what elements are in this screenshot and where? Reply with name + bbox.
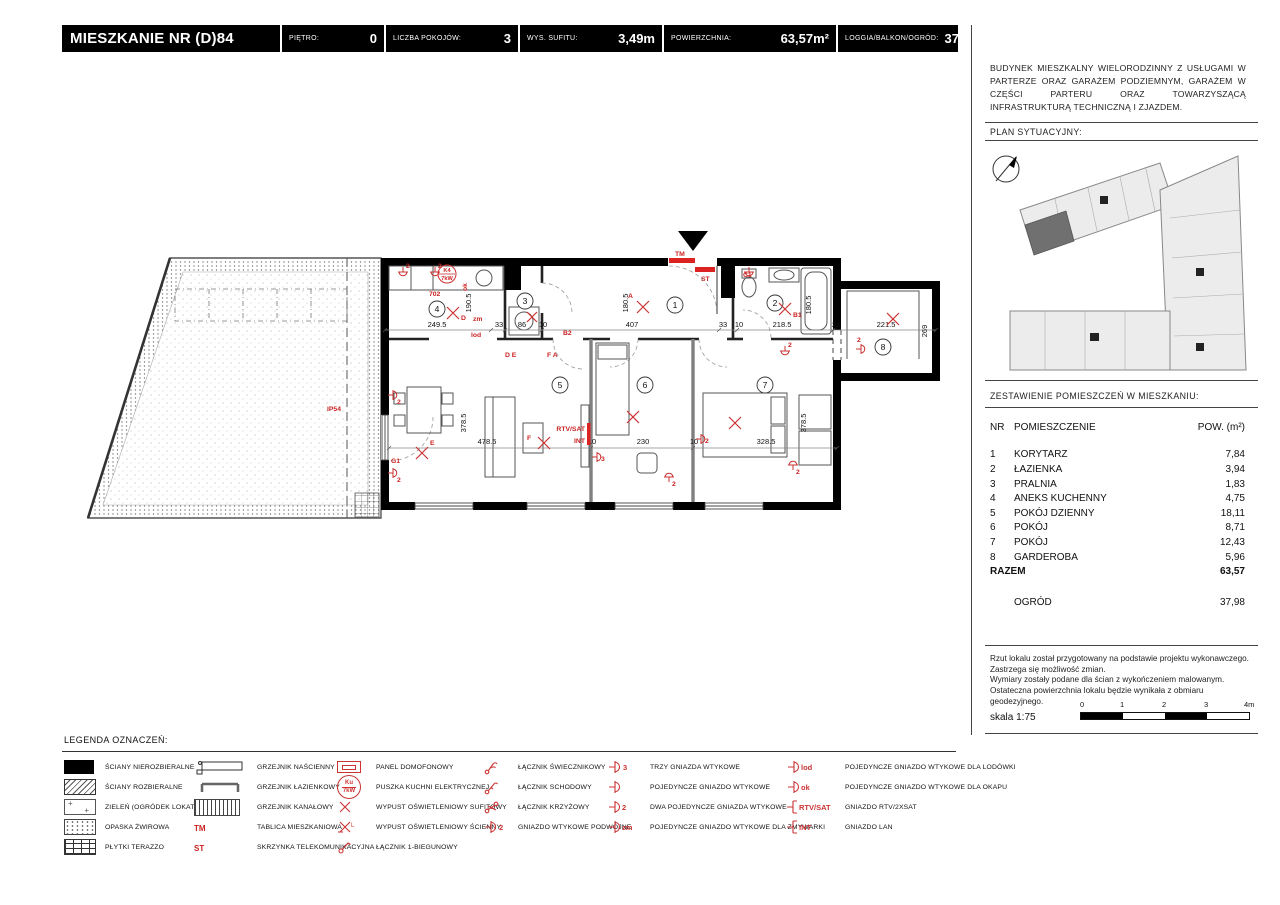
switch-single-icon: [337, 840, 353, 855]
svg-text:INT: INT: [574, 438, 586, 445]
svg-text:A: A: [628, 293, 633, 300]
legend-divider: [62, 751, 956, 752]
radiator-bathroom-icon: [194, 780, 246, 794]
svg-text:86: 86: [518, 320, 526, 329]
apartment-title: MIESZKANIE NR (D)84: [62, 25, 280, 52]
svg-text:269: 269: [920, 325, 929, 338]
svg-text:1: 1: [673, 300, 678, 310]
header-field-ceiling: WYS. SUFITU: 3,49m: [518, 25, 662, 52]
svg-text:F: F: [527, 435, 531, 442]
svg-text:lod: lod: [801, 763, 813, 772]
field-label: POWIERZCHNIA:: [671, 35, 731, 42]
svg-text:2: 2: [397, 477, 401, 484]
entrance-arrow-icon: [678, 231, 708, 251]
svg-text:478.5: 478.5: [478, 437, 497, 446]
header-field-garden: LOGGIA/BALKON/OGRÓD: 37,98m²: [836, 25, 1000, 52]
socket-two-single-icon: 2: [607, 799, 633, 815]
legend-item: Ku7kWPUSZKA KUCHNI ELEKTRYCZNEJ: [337, 777, 507, 797]
building-wing-b: [1160, 156, 1246, 370]
field-value: 3: [498, 31, 511, 46]
floor-plan: IP54 TM ST: [85, 225, 965, 535]
legend-item: INTGNIAZDO LAN: [786, 817, 1016, 837]
table-row: 5POKÓJ DZIENNY18,11: [990, 506, 1245, 521]
ceiling-light-icon: [337, 800, 353, 814]
col-nr: NR: [990, 422, 1014, 433]
greenery-icon: [64, 799, 96, 815]
field-value: 3,49m: [612, 31, 655, 46]
legend-item: WYPUST OŚWIETLENIOWY SUFITOWY: [337, 797, 507, 817]
svg-text:3: 3: [601, 456, 605, 463]
svg-text:RTV/SAT: RTV/SAT: [799, 803, 831, 812]
col-area: POW. (m²): [1185, 422, 1245, 433]
socket-triple-icon: 3: [607, 759, 633, 775]
legend-item: okPOJEDYNCZE GNIAZDO WTYKOWE DLA OKAPU: [786, 777, 1016, 797]
switch-cross-icon: [483, 800, 501, 815]
field-label: WYS. SUFITU:: [527, 35, 578, 42]
svg-text:2: 2: [499, 823, 503, 832]
socket-fridge-icon: lod: [786, 759, 820, 775]
sidebar-divider: [971, 25, 972, 735]
svg-text:2: 2: [397, 399, 401, 406]
situational-plan-title: PLAN SYTUACYJNY:: [990, 127, 1082, 137]
divider-line: [985, 645, 1258, 646]
svg-text:B2: B2: [563, 330, 572, 337]
walls-solid-icon: [64, 760, 94, 774]
tm-icon: TM: [194, 818, 206, 836]
legend-item: PANEL DOMOFONOWY: [337, 757, 507, 777]
table-row: 6POKÓJ8,71: [990, 521, 1245, 536]
table-garden-row: OGRÓD37,98: [990, 595, 1245, 610]
svg-text:407: 407: [626, 320, 639, 329]
socket-hood-icon: ok: [786, 779, 820, 795]
field-label: LICZBA POKOJÓW:: [393, 35, 461, 42]
svg-text:378.5: 378.5: [459, 414, 468, 433]
svg-text:218.5: 218.5: [773, 320, 792, 329]
col-name: POMIESZCZENIE: [1014, 422, 1185, 433]
svg-text:2: 2: [705, 438, 709, 445]
socket-double-icon: 2: [483, 819, 507, 835]
field-label: LOGGIA/BALKON/OGRÓD:: [845, 35, 939, 42]
legend-item: LWYPUST OŚWIETLENIOWY ŚCIENNY: [337, 817, 507, 837]
st-icon: ST: [194, 838, 204, 856]
radiator-wall-icon: [194, 759, 246, 775]
svg-text:180.5: 180.5: [804, 296, 813, 315]
svg-text:33: 33: [719, 320, 727, 329]
svg-text:221.5: 221.5: [877, 320, 896, 329]
wall-light-icon: L: [337, 820, 357, 834]
field-label: PIĘTRO:: [289, 35, 319, 42]
room-table: NR POMIESZCZENIE POW. (m²) 1KORYTARZ7,84…: [990, 420, 1245, 610]
header-bar: MIESZKANIE NR (D)84 PIĘTRO: 0 LICZBA POK…: [62, 25, 958, 52]
svg-text:E: E: [430, 440, 435, 447]
legend-item: lodPOJEDYNCZE GNIAZDO WTYKOWE DLA LODÓWK…: [786, 757, 1016, 777]
table-total-row: RAZEM63,57: [990, 564, 1245, 579]
header-field-rooms: LICZBA POKOJÓW: 3: [384, 25, 518, 52]
svg-text:2: 2: [857, 337, 861, 344]
terazzo-pad: [355, 493, 379, 517]
walls-removable-icon: [64, 779, 96, 795]
svg-text:4: 4: [435, 304, 440, 314]
svg-text:F A: F A: [547, 352, 558, 359]
svg-text:21: 21: [832, 320, 840, 329]
svg-text:10: 10: [735, 320, 743, 329]
svg-text:3: 3: [523, 296, 528, 306]
svg-text:190.5: 190.5: [464, 294, 473, 313]
svg-text:RTV/SAT: RTV/SAT: [556, 426, 585, 433]
table-row: 8GARDEROBA5,96: [990, 550, 1245, 565]
svg-text:D: D: [461, 315, 466, 322]
terazzo-icon: [64, 839, 96, 855]
svg-text:ok: ok: [462, 283, 469, 291]
svg-text:INT: INT: [799, 823, 812, 832]
svg-text:7kW: 7kW: [441, 276, 453, 282]
svg-text:ok: ok: [801, 783, 811, 792]
table-row: 3PRALNIA1,83: [990, 477, 1245, 492]
svg-text:D E: D E: [505, 352, 517, 359]
svg-text:2: 2: [672, 481, 676, 488]
kitchen-power-box-icon: Ku7kW: [337, 775, 361, 799]
divider-line: [985, 140, 1258, 141]
header-field-floor: PIĘTRO: 0: [280, 25, 384, 52]
st-marker: [695, 267, 715, 272]
legend-col-6: lodPOJEDYNCZE GNIAZDO WTYKOWE DLA LODÓWK…: [786, 757, 1016, 837]
legend-item: ŁĄCZNIK 1-BIEGUNOWY: [337, 837, 507, 857]
garden-area: IP54: [88, 258, 389, 518]
header-field-area: POWIERZCHNIA: 63,57m²: [662, 25, 836, 52]
room-table-title: ZESTAWIENIE POMIESZCZEŃ W MIESZKANIU:: [990, 391, 1199, 401]
field-value: 63,57m²: [775, 31, 829, 46]
svg-text:2: 2: [438, 263, 442, 270]
socket-single-icon: [607, 779, 633, 795]
svg-text:10: 10: [539, 320, 547, 329]
legend-item: RTV/SATGNIAZDO RTV/2XSAT: [786, 797, 1016, 817]
svg-text:702: 702: [429, 291, 441, 298]
svg-text:249.5: 249.5: [428, 320, 447, 329]
table-row: 1KORYTARZ7,84: [990, 448, 1245, 463]
lan-icon: INT: [786, 819, 826, 835]
svg-text:33: 33: [495, 320, 503, 329]
svg-text:K4: K4: [443, 268, 451, 274]
tm-label: TM: [675, 251, 685, 258]
table-header-row: NR POMIESZCZENIE POW. (m²): [990, 420, 1245, 435]
ip54-label: IP54: [327, 406, 341, 413]
situational-plan-map: [1000, 148, 1256, 376]
svg-text:2: 2: [406, 263, 410, 270]
svg-text:G1: G1: [391, 458, 400, 465]
table-row: 7POKÓJ12,43: [990, 535, 1245, 550]
table-row: 2ŁAZIENKA3,94: [990, 462, 1245, 477]
svg-text:zm: zm: [473, 316, 482, 323]
divider-line: [985, 380, 1258, 381]
radiator-channel-icon: [194, 799, 240, 816]
svg-text:lod: lod: [471, 332, 481, 339]
divider-line: [985, 733, 1258, 734]
building-description: BUDYNEK MIESZKALNY WIELORODZINNY Z USŁUG…: [990, 62, 1246, 114]
svg-text:5: 5: [558, 380, 563, 390]
divider-line: [985, 407, 1258, 408]
legend-title: LEGENDA OZNACZEŃ:: [64, 735, 168, 745]
tm-marker: [669, 258, 695, 263]
divider-line: [985, 122, 1258, 123]
svg-text:L: L: [351, 823, 355, 829]
svg-text:6: 6: [643, 380, 648, 390]
svg-text:378.5: 378.5: [799, 414, 808, 433]
svg-text:2: 2: [622, 803, 626, 812]
switch-stair-icon: [483, 780, 501, 795]
table-row: 4ANEKS KUCHENNY4,75: [990, 491, 1245, 506]
svg-text:zm: zm: [622, 823, 633, 832]
scale-bar: [1080, 712, 1250, 720]
svg-text:328.5: 328.5: [757, 437, 776, 446]
svg-text:2: 2: [773, 298, 778, 308]
svg-text:10: 10: [690, 437, 698, 446]
svg-text:230: 230: [637, 437, 650, 446]
intercom-panel-icon: [337, 761, 361, 773]
switch-chandelier-icon: [483, 760, 501, 775]
scale-label: skala 1:75: [990, 712, 1036, 723]
socket-dishwasher-icon: zm: [607, 819, 637, 835]
field-value: 0: [364, 31, 377, 46]
svg-text:8: 8: [881, 342, 886, 352]
svg-text:B1: B1: [793, 312, 802, 319]
svg-text:3: 3: [623, 763, 627, 772]
gravel-icon: [64, 819, 96, 835]
legend-col-3: PANEL DOMOFONOWY Ku7kWPUSZKA KUCHNI ELEK…: [337, 757, 507, 857]
svg-text:7: 7: [763, 380, 768, 390]
svg-text:2: 2: [796, 469, 800, 476]
rtv-int-marker: [587, 423, 591, 445]
rtv-sat-icon: RTV/SAT: [786, 799, 838, 815]
field-value: 37,98m²: [939, 31, 993, 46]
svg-text:2: 2: [788, 342, 792, 349]
